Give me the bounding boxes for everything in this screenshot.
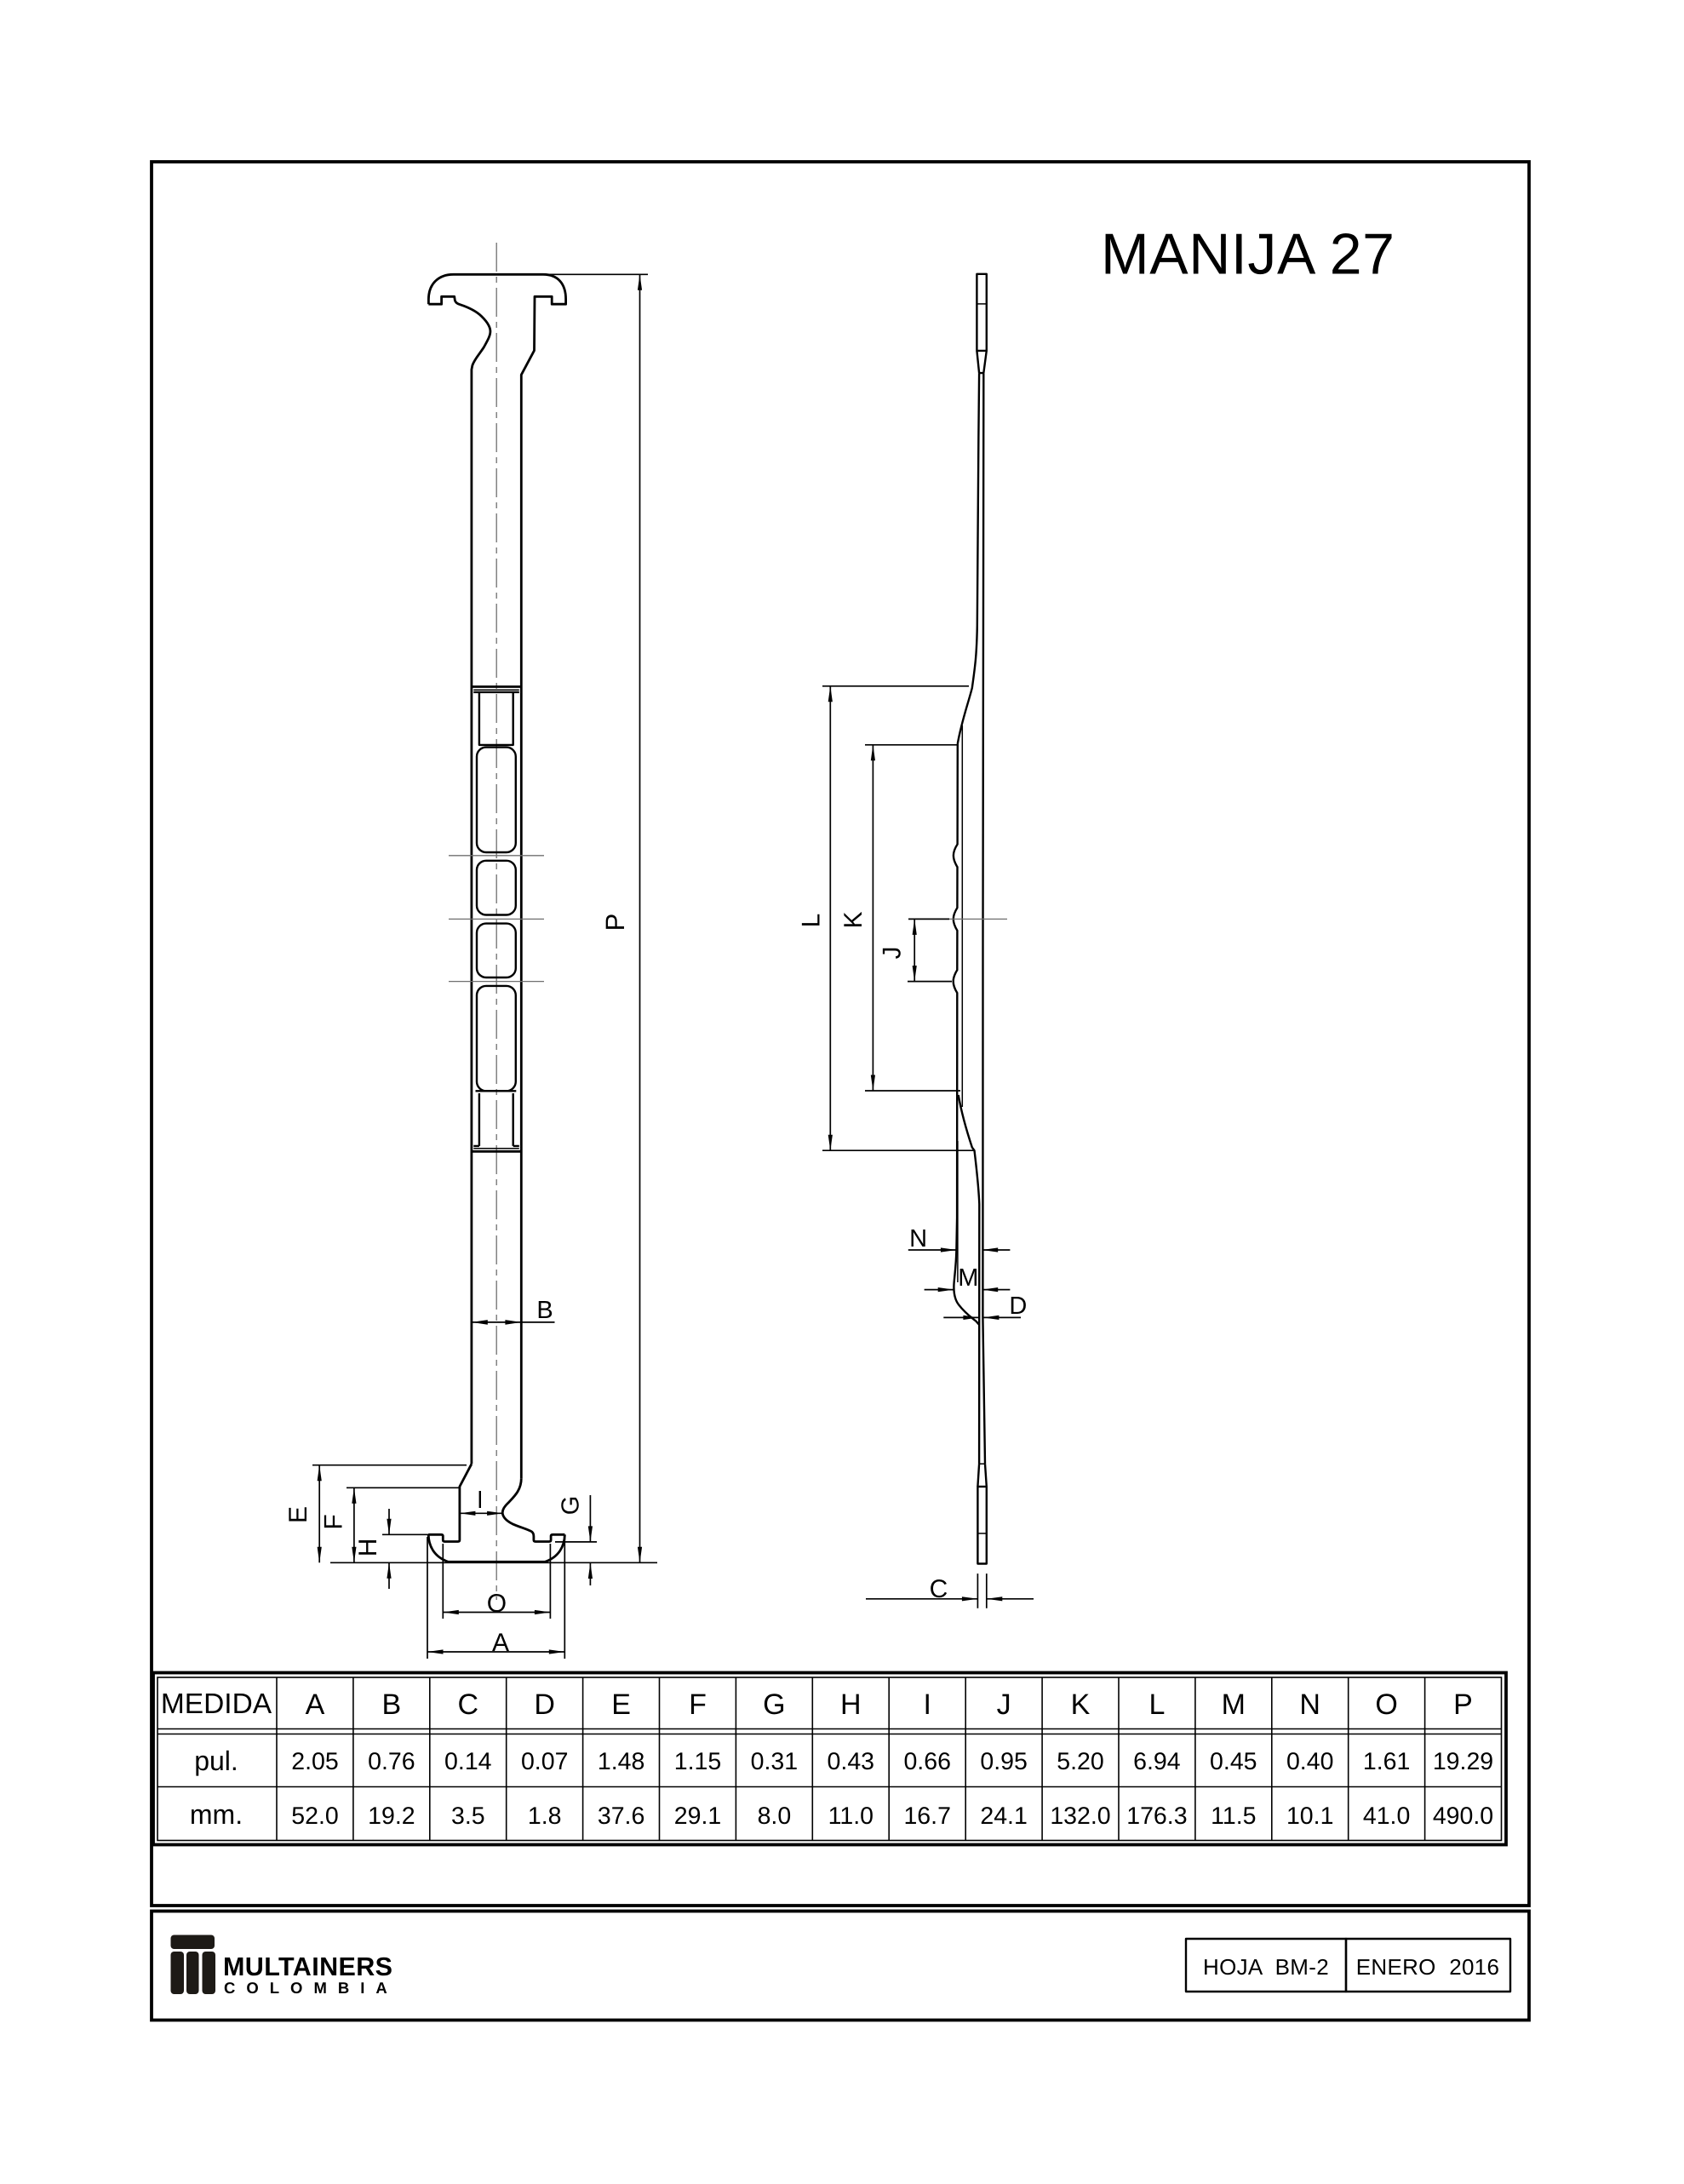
svg-text:M: M — [1222, 1688, 1246, 1721]
svg-text:A: A — [492, 1629, 509, 1657]
svg-text:B: B — [536, 1297, 553, 1324]
svg-text:8.0: 8.0 — [758, 1803, 792, 1830]
svg-text:2.05: 2.05 — [291, 1748, 338, 1775]
svg-text:1.48: 1.48 — [598, 1748, 644, 1775]
svg-text:16.7: 16.7 — [903, 1803, 950, 1830]
svg-text:6.94: 6.94 — [1133, 1748, 1181, 1775]
svg-text:G: G — [763, 1688, 785, 1721]
svg-text:HOJA BM-2: HOJA BM-2 — [1203, 1954, 1329, 1980]
svg-text:J: J — [879, 947, 907, 960]
svg-text:0.66: 0.66 — [903, 1748, 950, 1775]
svg-text:L: L — [1148, 1688, 1165, 1721]
svg-text:1.61: 1.61 — [1363, 1748, 1410, 1775]
svg-text:O: O — [487, 1590, 507, 1618]
svg-text:52.0: 52.0 — [291, 1803, 338, 1830]
svg-text:pul.: pul. — [194, 1745, 238, 1776]
svg-text:M: M — [958, 1264, 978, 1292]
svg-text:I: I — [923, 1688, 931, 1721]
svg-text:0.76: 0.76 — [368, 1748, 415, 1775]
svg-text:H: H — [354, 1539, 382, 1557]
svg-text:24.1: 24.1 — [980, 1803, 1027, 1830]
svg-text:N: N — [1299, 1688, 1320, 1721]
svg-text:10.1: 10.1 — [1286, 1803, 1333, 1830]
svg-text:O: O — [1375, 1688, 1397, 1721]
svg-text:19.2: 19.2 — [368, 1803, 415, 1830]
svg-text:MANIJA 27: MANIJA 27 — [1101, 222, 1395, 287]
svg-text:37.6: 37.6 — [598, 1803, 644, 1830]
svg-text:G: G — [558, 1496, 585, 1516]
svg-text:5.20: 5.20 — [1057, 1748, 1103, 1775]
svg-text:29.1: 29.1 — [674, 1803, 721, 1830]
svg-text:0.07: 0.07 — [521, 1748, 568, 1775]
svg-text:MULTAINERS: MULTAINERS — [223, 1952, 392, 1981]
svg-text:D: D — [1009, 1293, 1027, 1320]
svg-text:11.5: 11.5 — [1211, 1803, 1256, 1830]
svg-text:K: K — [839, 911, 868, 928]
svg-text:11.0: 11.0 — [828, 1803, 874, 1830]
svg-text:41.0: 41.0 — [1363, 1803, 1410, 1830]
svg-text:P: P — [600, 914, 630, 931]
svg-text:0.45: 0.45 — [1210, 1748, 1257, 1775]
svg-text:F: F — [689, 1688, 707, 1721]
svg-text:K: K — [1071, 1688, 1091, 1721]
svg-text:132.0: 132.0 — [1050, 1803, 1110, 1830]
svg-text:0.31: 0.31 — [751, 1748, 798, 1775]
svg-text:176.3: 176.3 — [1126, 1803, 1187, 1830]
svg-text:A: A — [306, 1688, 325, 1721]
svg-text:COLOMBIA: COLOMBIA — [224, 1979, 398, 1997]
svg-text:C: C — [458, 1688, 479, 1721]
svg-text:490.0: 490.0 — [1433, 1803, 1493, 1830]
svg-text:0.40: 0.40 — [1286, 1748, 1333, 1775]
svg-text:L: L — [798, 914, 826, 928]
svg-text:P: P — [1453, 1688, 1473, 1721]
svg-text:1.8: 1.8 — [528, 1803, 562, 1830]
svg-text:0.95: 0.95 — [980, 1748, 1027, 1775]
svg-text:E: E — [611, 1688, 631, 1721]
svg-text:D: D — [534, 1688, 555, 1721]
svg-text:0.14: 0.14 — [444, 1748, 492, 1775]
svg-text:J: J — [997, 1688, 1011, 1721]
svg-text:B: B — [382, 1688, 402, 1721]
svg-text:0.43: 0.43 — [828, 1748, 874, 1775]
svg-text:E: E — [284, 1506, 312, 1523]
svg-text:H: H — [840, 1688, 862, 1721]
svg-text:3.5: 3.5 — [451, 1803, 485, 1830]
svg-text:F: F — [320, 1514, 348, 1529]
svg-text:ENERO 2016: ENERO 2016 — [1356, 1954, 1500, 1980]
svg-text:19.29: 19.29 — [1433, 1748, 1493, 1775]
svg-text:N: N — [909, 1225, 927, 1253]
svg-text:MEDIDA: MEDIDA — [161, 1688, 272, 1720]
svg-text:mm.: mm. — [190, 1799, 243, 1830]
svg-text:1.15: 1.15 — [674, 1748, 721, 1775]
